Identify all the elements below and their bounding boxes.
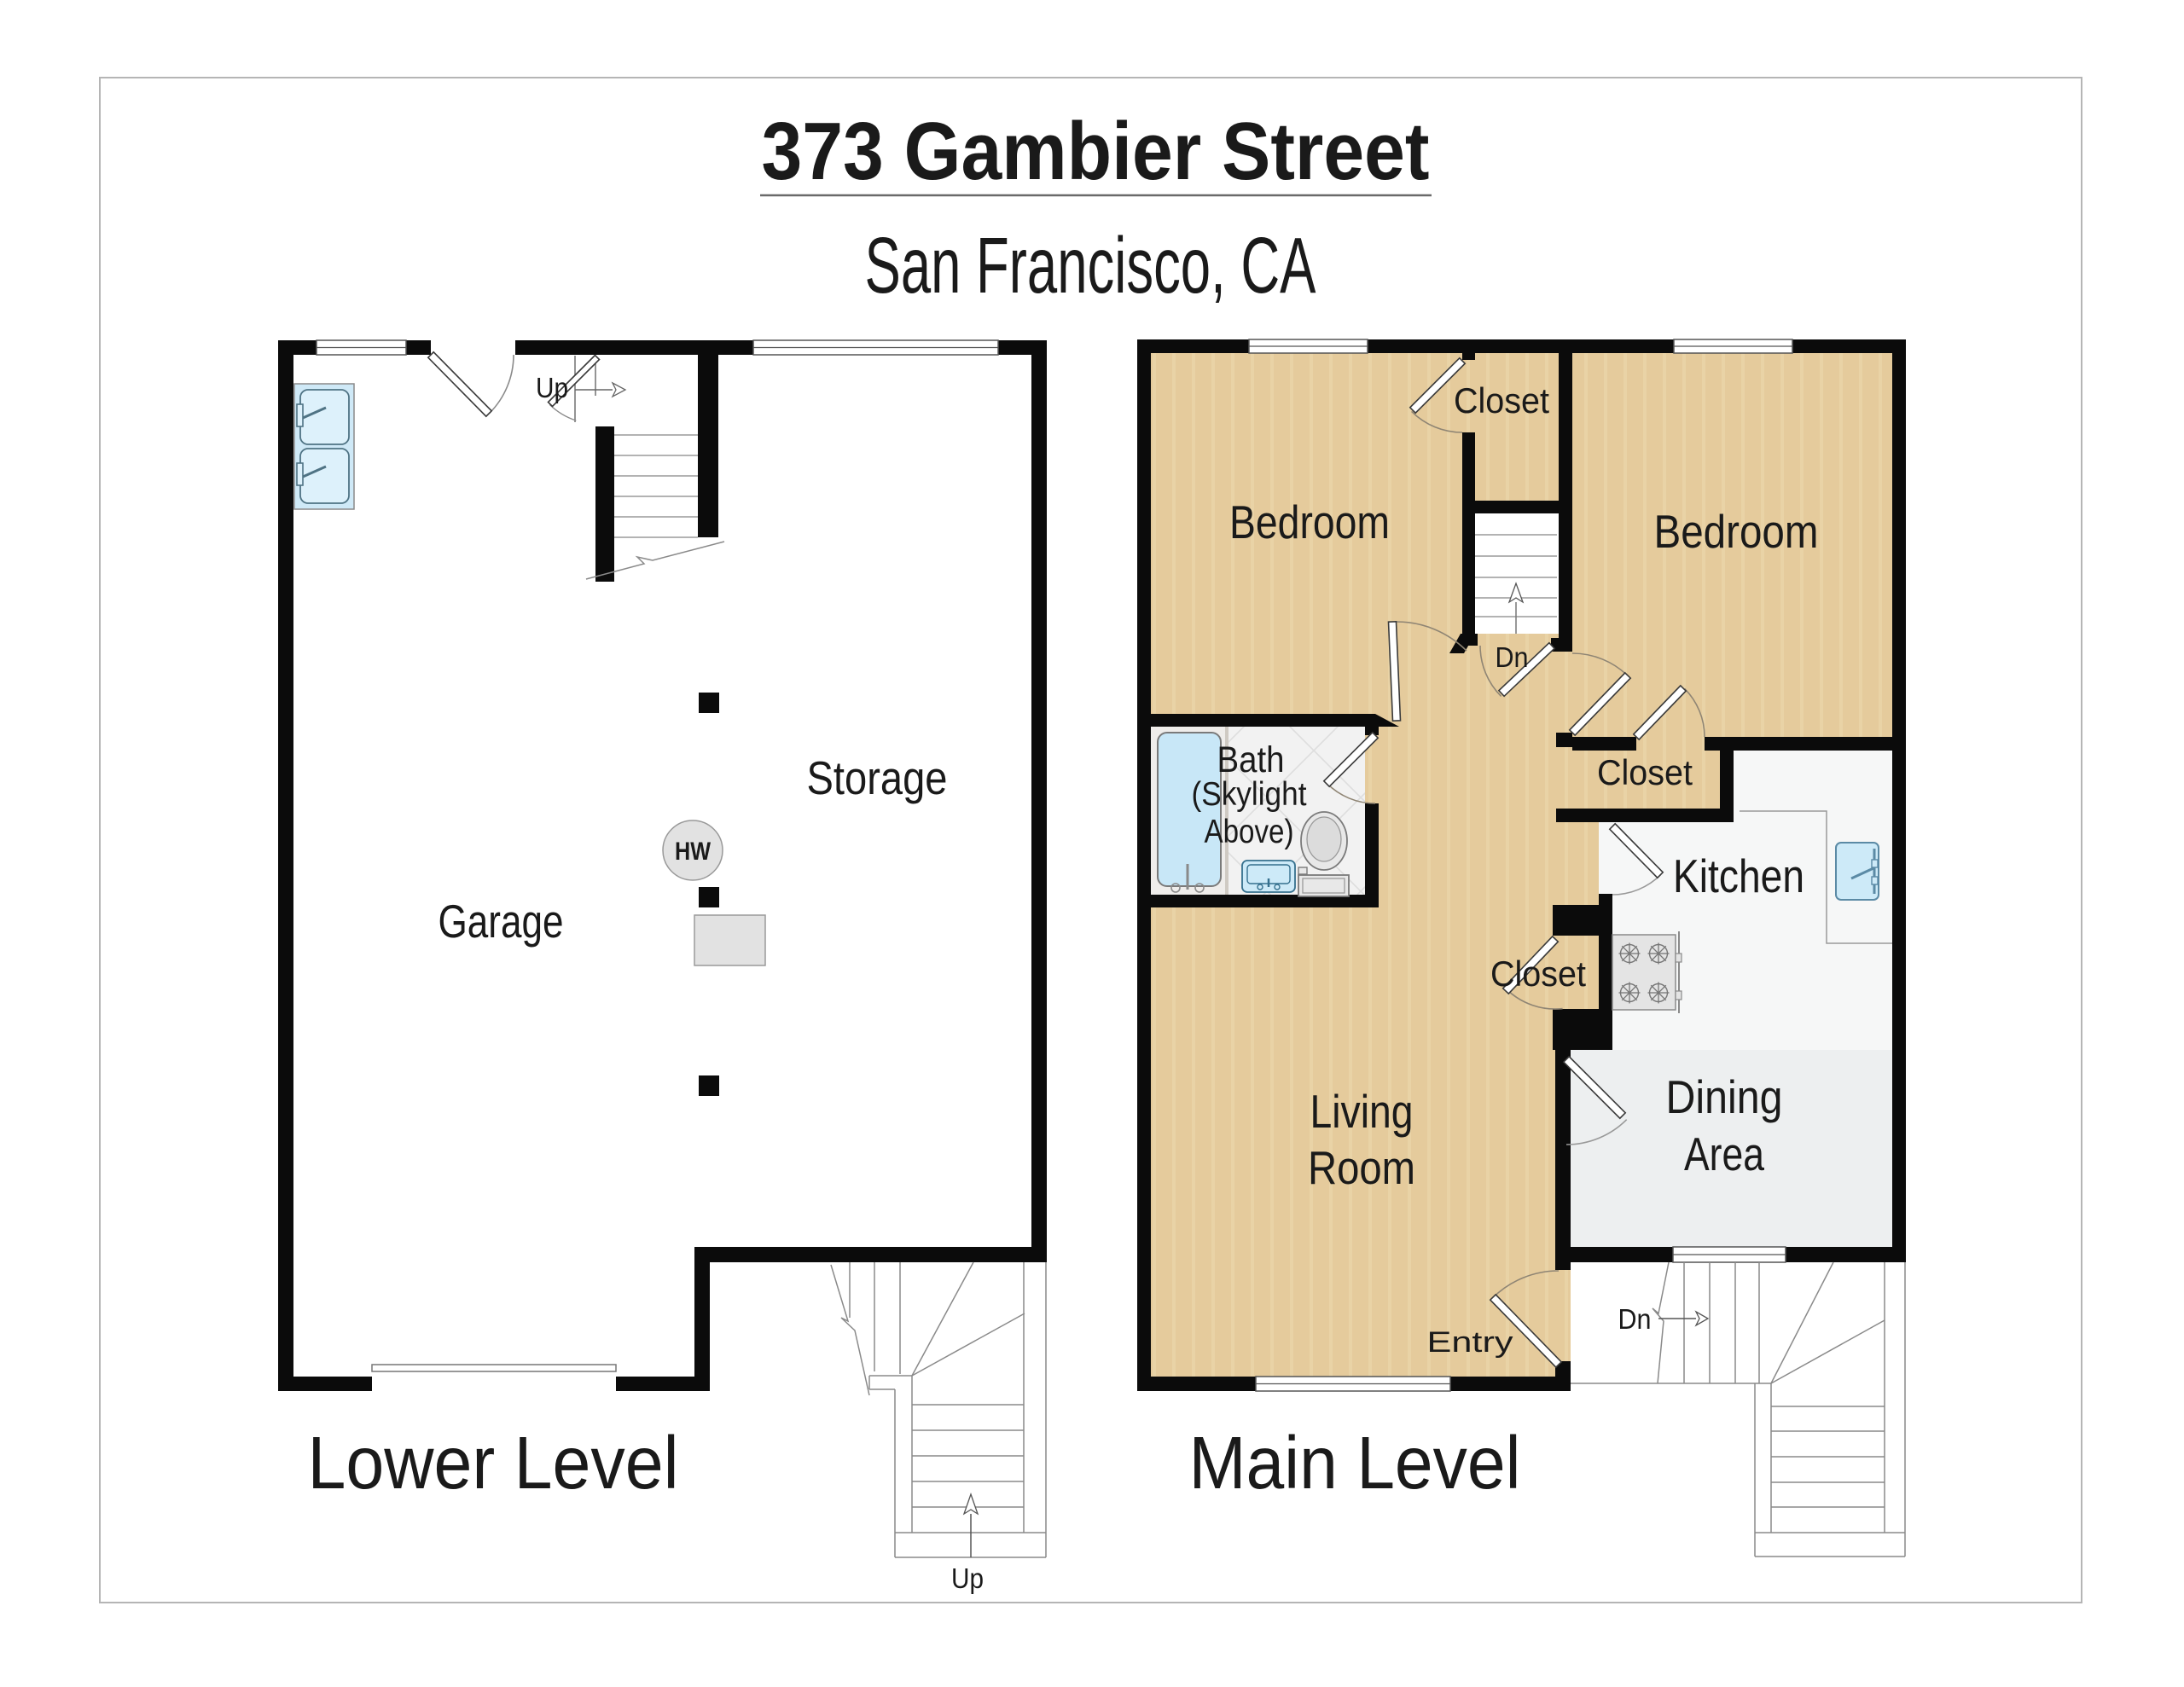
svg-text:San Francisco, CA: San Francisco, CA xyxy=(865,221,1316,310)
svg-text:Garage: Garage xyxy=(439,895,564,948)
svg-text:Bedroom: Bedroom xyxy=(1229,496,1390,548)
svg-text:Lower Level: Lower Level xyxy=(308,1422,679,1504)
svg-text:373 Gambier Street: 373 Gambier Street xyxy=(762,106,1430,197)
svg-text:Above): Above) xyxy=(1205,814,1294,850)
svg-text:Dining: Dining xyxy=(1666,1070,1783,1123)
svg-text:Room: Room xyxy=(1308,1141,1415,1194)
svg-text:Storage: Storage xyxy=(807,751,948,804)
svg-text:Living: Living xyxy=(1310,1085,1414,1138)
svg-text:Closet: Closet xyxy=(1597,752,1693,792)
svg-text:Entry: Entry xyxy=(1427,1326,1513,1359)
svg-text:Bath: Bath xyxy=(1217,739,1285,780)
svg-text:Kitchen: Kitchen xyxy=(1673,849,1804,902)
svg-text:(Skylight: (Skylight xyxy=(1192,776,1307,813)
svg-text:Closet: Closet xyxy=(1454,380,1549,420)
svg-text:Up: Up xyxy=(951,1562,984,1594)
svg-text:Main Level: Main Level xyxy=(1189,1422,1521,1504)
svg-text:Dn: Dn xyxy=(1496,641,1529,673)
svg-text:Area: Area xyxy=(1684,1128,1764,1180)
svg-text:HW: HW xyxy=(675,838,712,866)
svg-text:Closet: Closet xyxy=(1490,954,1586,994)
svg-text:Up: Up xyxy=(536,372,568,403)
svg-text:Bedroom: Bedroom xyxy=(1654,505,1819,558)
svg-text:Dn: Dn xyxy=(1618,1303,1652,1335)
